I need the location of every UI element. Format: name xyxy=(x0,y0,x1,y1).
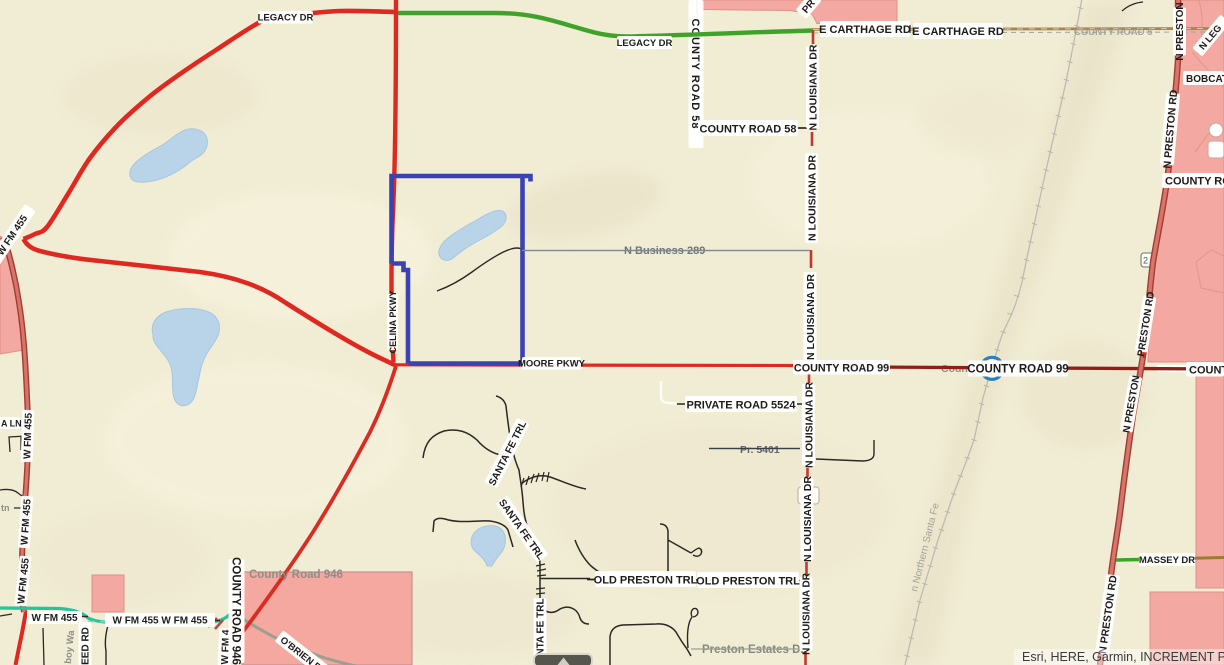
svg-text:OLD PRESTON TRL: OLD PRESTON TRL xyxy=(594,575,698,587)
svg-text:LEGACY DR: LEGACY DR xyxy=(258,13,314,24)
svg-text:COUNTY ROAD 99: COUNTY ROAD 99 xyxy=(967,364,1068,376)
svg-text:COUNTY ROAD 58: COUNTY ROAD 58 xyxy=(700,124,797,136)
svg-text:Esri, HERE, Garmin, INCREMENT: Esri, HERE, Garmin, INCREMENT P, I xyxy=(1022,650,1224,664)
svg-text:PRIVATE ROAD 5524: PRIVATE ROAD 5524 xyxy=(686,400,796,412)
svg-text:Pr. 5401: Pr. 5401 xyxy=(740,444,780,456)
svg-text:W FM 455 W FM 455: W FM 455 W FM 455 xyxy=(112,616,207,627)
svg-text:A LN: A LN xyxy=(1,419,22,429)
svg-text:EED RD: EED RD xyxy=(81,627,92,665)
svg-text:County Road 946: County Road 946 xyxy=(249,569,343,581)
svg-text:COUNTY ROAD 946: COUNTY ROAD 946 xyxy=(230,557,242,665)
svg-text:COUNTY RO: COUNTY RO xyxy=(1165,176,1224,188)
svg-text:N PRESTON: N PRESTON xyxy=(1175,2,1186,60)
svg-text:COUNTY ROAD 99: COUNTY ROAD 99 xyxy=(794,362,889,374)
svg-text:W FM 455: W FM 455 xyxy=(22,412,35,459)
svg-text:W FM 455: W FM 455 xyxy=(31,613,78,624)
svg-text:N LOUISIANA DR: N LOUISIANA DR xyxy=(802,476,814,562)
svg-text:COUNTY R: COUNTY R xyxy=(1189,365,1224,377)
svg-text:BOBCAT: BOBCAT xyxy=(1186,74,1224,85)
svg-text:OLD PRESTON TRL: OLD PRESTON TRL xyxy=(696,576,800,588)
svg-text:N LOUISIANA DR: N LOUISIANA DR xyxy=(806,155,818,241)
svg-text:LEGACY DR: LEGACY DR xyxy=(617,38,673,49)
svg-text:CELINA PKWY: CELINA PKWY xyxy=(388,291,398,354)
svg-text:N LOUISIANA DR: N LOUISIANA DR xyxy=(807,44,819,130)
svg-text:MOORE PKWY: MOORE PKWY xyxy=(518,359,586,370)
svg-text:E CARTHAGE RD: E CARTHAGE RD xyxy=(819,24,911,36)
svg-text:E CARTHAGE RD: E CARTHAGE RD xyxy=(912,26,1004,38)
svg-text:COUNTY ROAD 5: COUNTY ROAD 5 xyxy=(1074,27,1153,38)
svg-text:N LOUISIANA DR: N LOUISIANA DR xyxy=(805,274,817,360)
svg-text:N LOUISIANA DR: N LOUISIANA DR xyxy=(802,572,813,655)
svg-text:N LOUISIANA DR: N LOUISIANA DR xyxy=(803,382,815,468)
svg-text:Preston Estates Dr: Preston Estates Dr xyxy=(702,644,805,656)
svg-text:2: 2 xyxy=(1143,256,1148,266)
svg-text:MASSEY DR: MASSEY DR xyxy=(1139,555,1195,566)
svg-text:tn: tn xyxy=(1,503,10,513)
